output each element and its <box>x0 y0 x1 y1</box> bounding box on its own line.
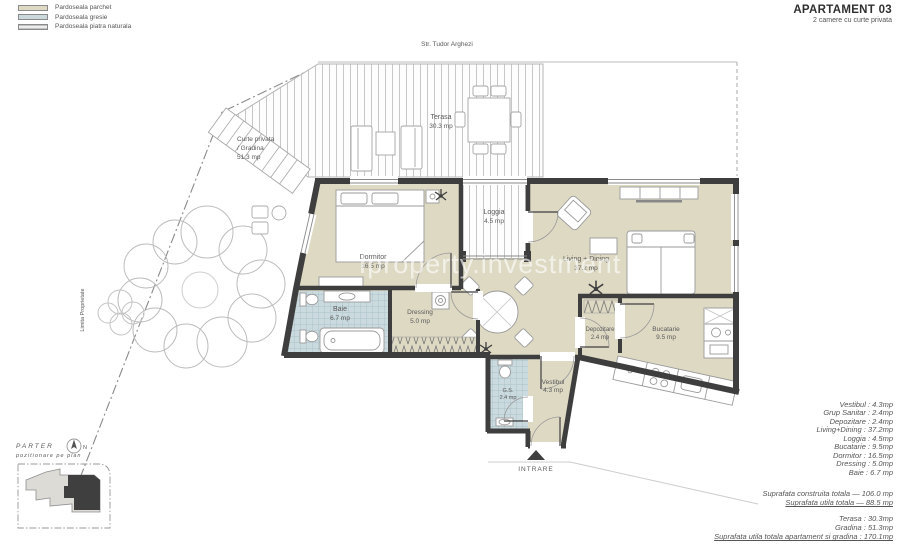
key-plan-drawing: PARTER pozitionare pe plan N <box>12 436 132 536</box>
grand-total: Suprafata utila totala apartament si gra… <box>714 532 893 541</box>
garden-bush <box>98 290 144 335</box>
dressing-area: 5.0 mp <box>410 318 430 325</box>
north-label: N <box>83 445 87 451</box>
keyplan-title: PARTER <box>16 443 54 450</box>
legend-item-gresie: Pardoseala gresie <box>18 13 131 23</box>
bucatarie-name: Bucatarie <box>652 326 680 333</box>
vestibul-area: 4.3 mp <box>543 387 563 394</box>
total-built-area: Suprafata construita totala106.0 mp <box>714 489 893 498</box>
bucatarie-area: 9.5 mp <box>656 334 676 341</box>
baie-area: 6.7 mp <box>330 315 350 322</box>
legend-label: Pardoseala gresie <box>55 14 107 21</box>
tile-swatch <box>18 14 48 20</box>
legend-label: Pardoseala piatra naturala <box>55 23 131 30</box>
exterior-areas-list: Terasa30.3mp Gradina51.3mp Suprafata uti… <box>714 514 893 541</box>
total-usable-area: Suprafata utila totala88.5 mp <box>714 498 893 507</box>
entrance-label: INTRARE <box>518 466 554 473</box>
stone-swatch <box>18 24 48 30</box>
legend-item-piatra: Pardoseala piatra naturala <box>18 22 131 32</box>
dressing-name: Dressing <box>407 309 433 316</box>
gradina-line2: / Gradina <box>237 145 264 152</box>
apartment-title: APARTAMENT 03 <box>793 4 892 16</box>
list-item: Baie6.7 mp <box>714 469 893 477</box>
floor-legend: Pardoseala parchet Pardoseala gresie Par… <box>18 3 131 32</box>
depozitare-name: Depozitare <box>585 327 615 333</box>
street-label: Str. Tudor Arghezi <box>421 41 473 48</box>
area-summary: Vestibul4.3mp Grup Sanitar2.4mp Depozita… <box>714 401 893 541</box>
dormitor-name: Dormitor <box>360 254 388 261</box>
apartment-subtitle: 2 camere cu curte privata <box>793 17 892 24</box>
gradina-area: 51.3 mp <box>237 154 261 161</box>
legend-item-parchet: Pardoseala parchet <box>18 3 131 13</box>
gradina-line1: Curte privata <box>237 136 275 143</box>
gs-area: 2.4 mp <box>500 395 517 401</box>
list-item: Gradina51.3mp <box>714 523 893 532</box>
property-line-label: Limita Proprietate <box>80 288 86 331</box>
loggia-name: Loggia <box>483 209 504 216</box>
entrance-marker: INTRARE <box>518 450 554 473</box>
living-name: Living + Dining <box>563 256 609 263</box>
baie-name: Baie <box>333 306 347 313</box>
vestibul-name: Vestibul <box>542 379 565 386</box>
floorplan-sheet: Pardoseala parchet Pardoseala gresie Par… <box>0 0 900 546</box>
keyplan-subtitle: pozitionare pe plan <box>15 453 81 459</box>
highlighted-unit <box>64 475 100 510</box>
gs-name: G.S. <box>502 388 513 394</box>
terasa-area: 30.3 mp <box>429 123 453 130</box>
terasa-name: Terasa <box>430 114 451 121</box>
dormitor-area: 16.5 mp <box>361 263 385 270</box>
key-plan: PARTER pozitionare pe plan N <box>12 436 132 541</box>
room-areas-list: Vestibul4.3mp Grup Sanitar2.4mp Depozita… <box>714 401 893 477</box>
list-item: Terasa30.3mp <box>714 514 893 523</box>
north-compass-icon: N <box>67 439 87 453</box>
title-block: APARTAMENT 03 2 camere cu curte privata <box>793 4 892 24</box>
parquet-swatch <box>18 5 48 11</box>
garden-furniture <box>252 206 286 234</box>
depozitare-area: 2.4 mp <box>591 335 610 341</box>
living-area: 37.2 mp <box>574 265 598 272</box>
legend-label: Pardoseala parchet <box>55 4 111 11</box>
washing-machine <box>432 292 449 309</box>
totals-list: Suprafata construita totala106.0 mp Supr… <box>714 489 893 507</box>
loggia-area: 4.5 mp <box>484 218 504 225</box>
